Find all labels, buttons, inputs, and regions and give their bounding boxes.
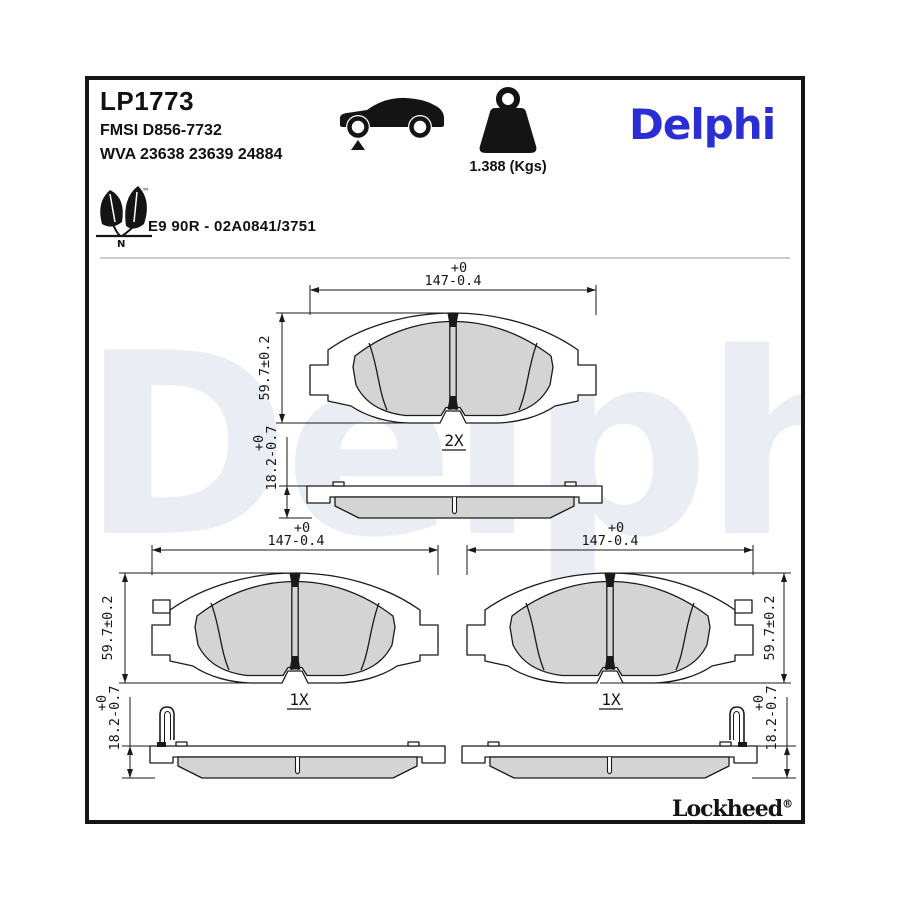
approval-number: E9 90R - 02A0841/3751	[148, 218, 316, 235]
registered-symbol: ®	[782, 798, 793, 811]
drawing-top-pad: +0 147-0.4 59.7±0.2 2X +0 18.2-0.7	[230, 259, 650, 529]
dim-height-bl: 59.7±0.2	[100, 595, 116, 660]
leaf-left	[100, 190, 123, 227]
car-front-wheel	[350, 119, 367, 136]
eco-leaf-icon: N ™	[96, 184, 152, 248]
dim-height-br: 59.7±0.2	[762, 595, 778, 660]
fmsi-number: FMSI D856-7732	[100, 122, 222, 140]
wear-indicator-left	[157, 707, 174, 747]
qty-top: 2X	[444, 431, 464, 450]
wva-numbers: WVA 23638 23639 24884	[100, 146, 282, 164]
leaf-n-mark: N	[117, 239, 125, 250]
wear-indicator-right	[730, 707, 747, 747]
front-axle-marker	[351, 140, 365, 150]
dim-width-top: 147-0.4	[425, 273, 482, 289]
dim-thickness-br: 18.2-0.7	[764, 685, 780, 750]
drawing-bottom-left-pad: +0 147-0.4 59.7±0.2 1X +0 18.2-0.7	[95, 519, 455, 809]
qty-bl: 1X	[289, 690, 309, 709]
dim-width-br: 147-0.4	[582, 533, 639, 549]
car-rear-wheel	[412, 119, 429, 136]
weight-body	[480, 108, 537, 153]
sheet-border: Delphi LP1773 FMSI D856-7732 WVA 23638 2…	[85, 76, 805, 824]
footer-brand-text: Lockheed	[672, 796, 782, 822]
brand-logo: Delphi	[629, 100, 775, 149]
sensor-tab-right	[735, 600, 752, 613]
weight-handle	[499, 90, 517, 108]
weight-value: 1.388 (Kgs)	[462, 159, 554, 175]
dim-thickness-bl: 18.2-0.7	[107, 685, 123, 750]
dim-width-bl: 147-0.4	[268, 533, 325, 549]
dim-height-top: 59.7±0.2	[257, 335, 273, 400]
sensor-tab-left	[153, 600, 170, 613]
part-number: LP1773	[100, 86, 194, 117]
footer-brand: Lockheed®	[672, 796, 793, 822]
drawing-bottom-right-pad: +0 147-0.4 59.7±0.2 1X +0 18.2-0.7	[450, 519, 805, 809]
car-side-icon	[338, 84, 448, 152]
dim-thickness-top: 18.2-0.7	[264, 425, 280, 490]
weight-icon	[474, 86, 542, 158]
qty-br: 1X	[601, 690, 621, 709]
datasheet-page: Delphi LP1773 FMSI D856-7732 WVA 23638 2…	[0, 0, 900, 900]
trademark-symbol: ™	[142, 187, 150, 196]
